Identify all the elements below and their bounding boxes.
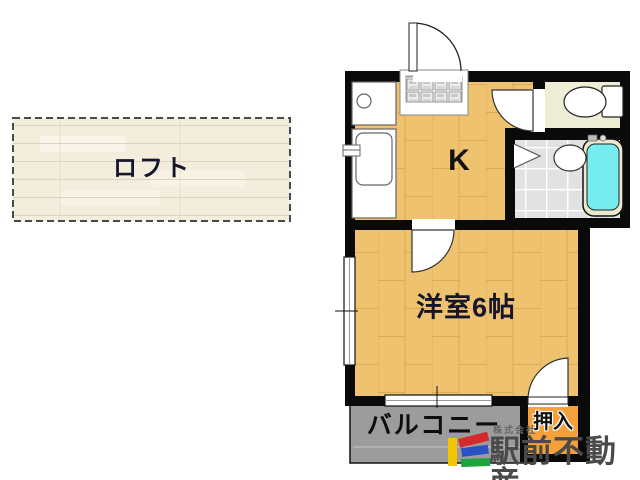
floor-plan-drawing: [0, 0, 640, 480]
entrance-door: [409, 23, 462, 82]
tub-faucet-icon: [588, 135, 597, 141]
company-name: 駅前不動産: [489, 436, 640, 480]
logo-bar-yellow: [448, 438, 457, 466]
bathtub: [583, 135, 623, 216]
toilet-fixture: [564, 86, 623, 117]
logo-bar-blue: [461, 445, 489, 457]
logo-bar-green: [461, 458, 490, 467]
western-room-label: 洋室6帖: [416, 295, 516, 322]
loft-label: ロフト: [113, 157, 191, 181]
closet-label: 押入: [533, 412, 573, 432]
company-logo-mark: [440, 428, 500, 472]
kitchen-label: K: [448, 146, 470, 176]
sink-unit: [352, 82, 396, 125]
washbasin: [554, 145, 586, 171]
left-window: [335, 257, 358, 365]
sink-drain-icon: [357, 94, 371, 108]
floor-plan: ロフト K 洋室6帖 バルコニー 押入 株式会社 駅前不動産: [0, 0, 640, 480]
